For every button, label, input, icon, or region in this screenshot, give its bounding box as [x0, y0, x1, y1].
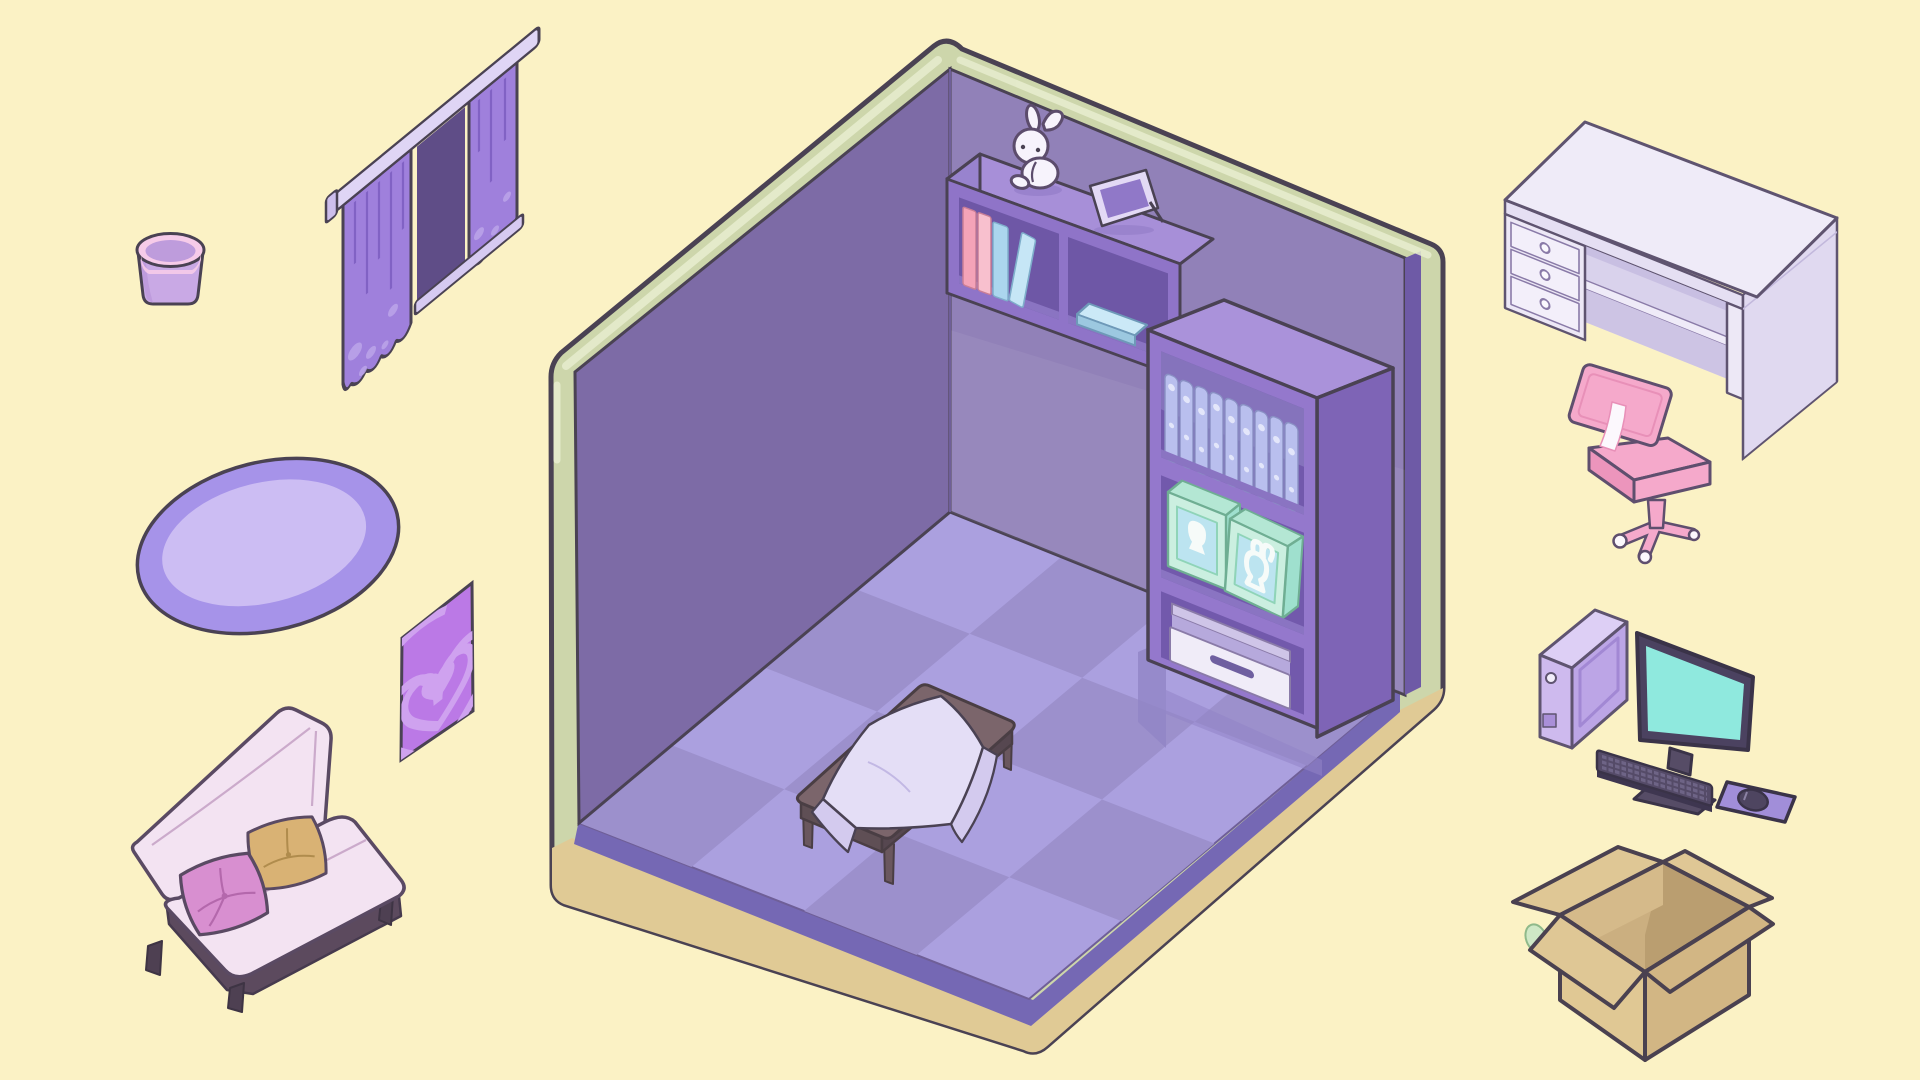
tower-front: [1540, 655, 1572, 748]
wall-right-edge: [1405, 251, 1421, 695]
game-stage: [0, 0, 1920, 1080]
bookshelf-front: [1148, 330, 1317, 728]
desk-leg-front: [1727, 303, 1743, 399]
power-button[interactable]: [1546, 673, 1556, 683]
tower-port: [1543, 714, 1556, 727]
bookshelf-right-side: [1317, 368, 1393, 737]
bucket-opening: [146, 240, 196, 262]
chair-column: [1648, 500, 1665, 528]
trash-bin[interactable]: [137, 234, 204, 305]
bookshelf[interactable]: [1138, 300, 1393, 776]
scene-canvas: [0, 0, 1920, 1080]
